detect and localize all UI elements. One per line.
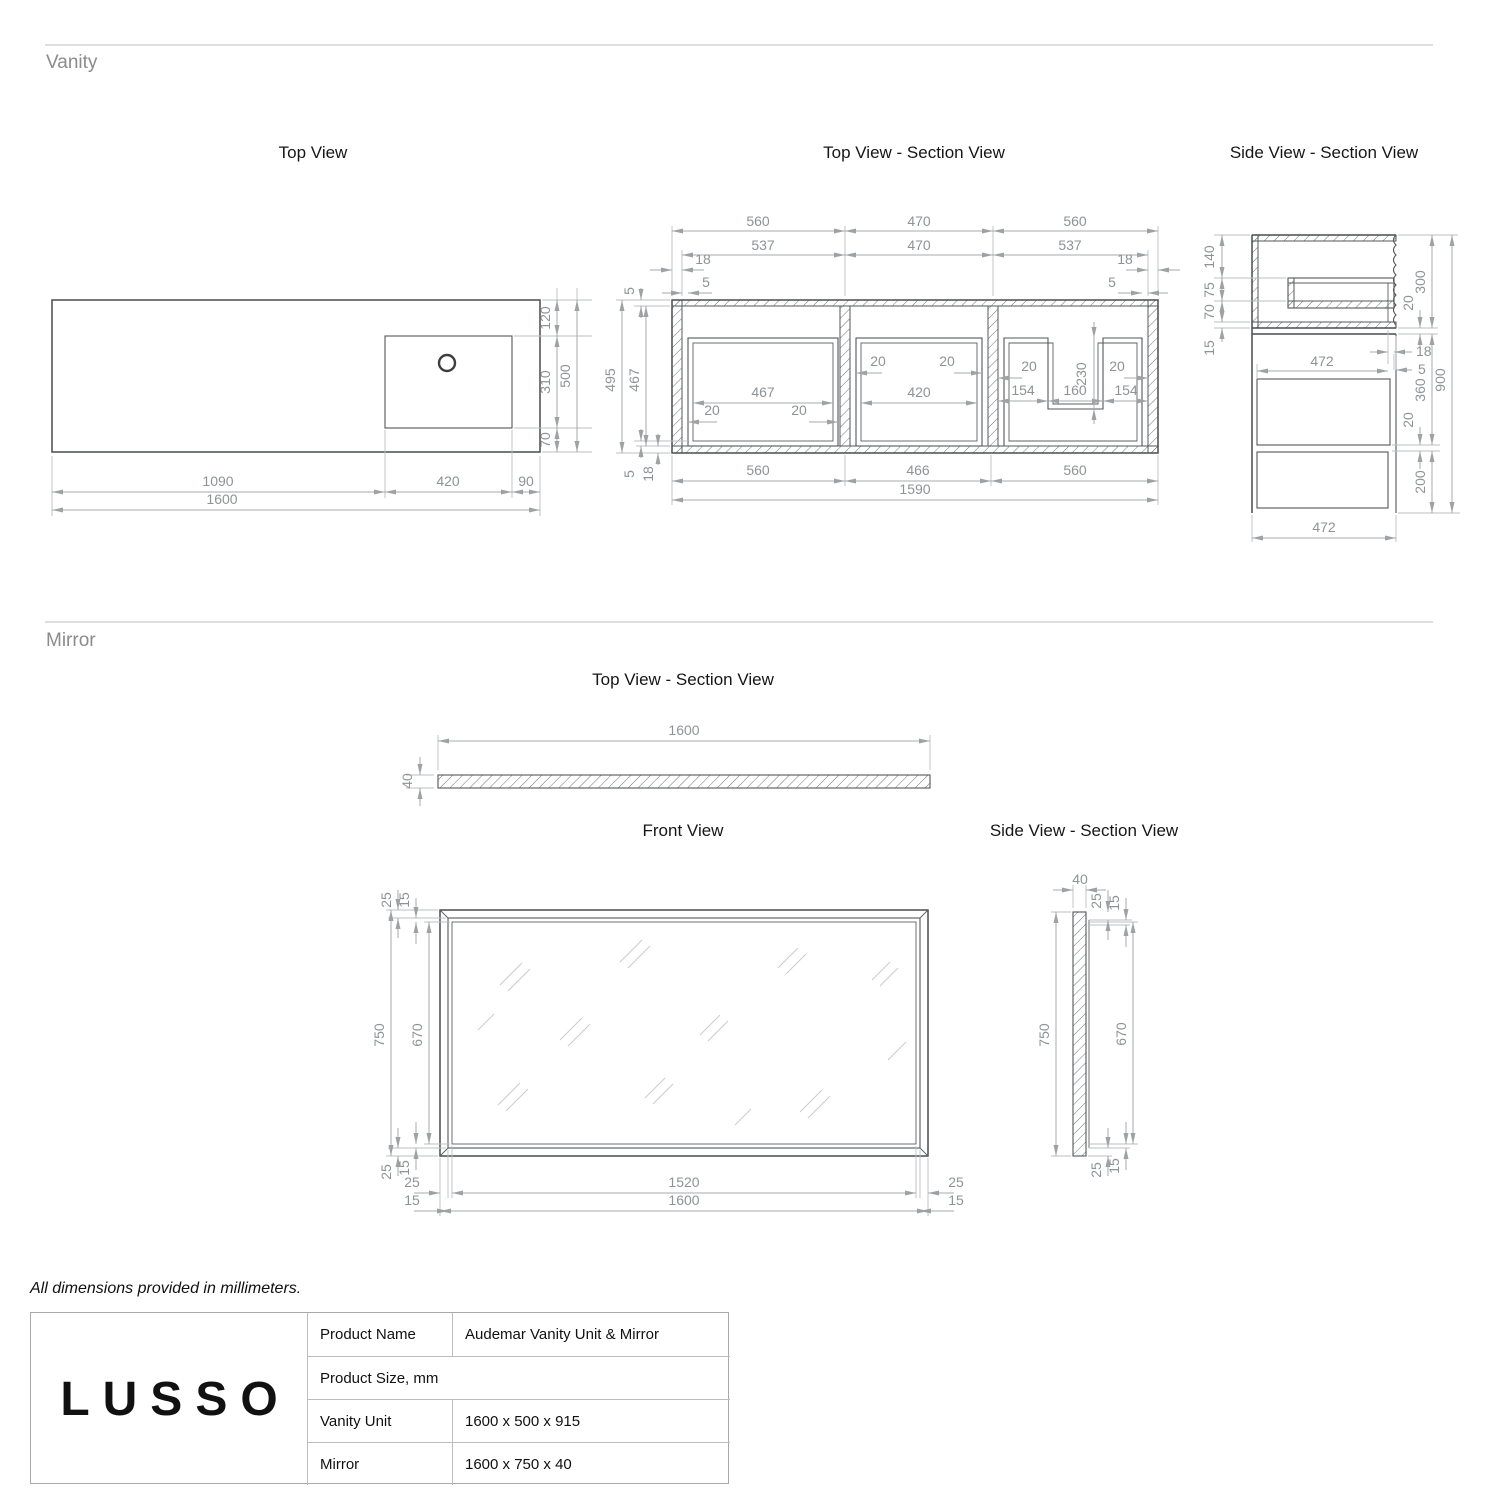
dim-label: 360 <box>1412 378 1428 402</box>
dim-label: 670 <box>1113 1022 1129 1046</box>
vanity-section-view-drawing: 560 470 560 537 470 537 18 5 18 5 5 <box>602 213 1180 505</box>
dim-label: 472 <box>1310 353 1334 369</box>
vanity-side-view-drawing: 140 75 70 15 300 20 360 20 200 900 18 5 <box>1201 235 1460 542</box>
dim-label: 25 <box>404 1174 420 1190</box>
dim-label: 154 <box>1011 382 1035 398</box>
dim-label: 90 <box>518 473 534 489</box>
dim-label: 670 <box>409 1023 425 1047</box>
dim-label: 20 <box>1109 358 1125 374</box>
dim-label: 230 <box>1073 362 1089 386</box>
mirror-glass-reflections <box>478 940 906 1125</box>
dim-label: 495 <box>602 368 618 392</box>
dim-label: 120 <box>537 306 553 330</box>
dim-label: 1600 <box>206 491 237 507</box>
dim-label: 537 <box>1058 237 1082 253</box>
faucet-hole <box>439 355 455 371</box>
drawing-sheet: Vanity Mirror Top View Top View - Sectio… <box>0 0 1500 1500</box>
dim-label: 15 <box>396 892 412 908</box>
dim-label: 20 <box>1400 412 1416 428</box>
dim-label: 15 <box>1106 895 1122 911</box>
dim-label: 420 <box>907 384 931 400</box>
dim-label: 140 <box>1201 245 1217 269</box>
mirror-size: 1600 x 750 x 40 <box>452 1442 730 1485</box>
dim-label: 467 <box>751 384 775 400</box>
vanity-top-view-drawing: 120 310 70 500 1090 420 90 1600 <box>52 288 592 516</box>
vanity-unit-label: Vanity Unit <box>308 1399 452 1442</box>
dim-label: 560 <box>1063 213 1087 229</box>
dim-label: 40 <box>1072 871 1088 887</box>
dim-label: 560 <box>746 213 770 229</box>
dim-label: 20 <box>1400 295 1416 311</box>
dim-label: 750 <box>1036 1023 1052 1047</box>
dim-label: 15 <box>1201 340 1217 356</box>
dim-label: 560 <box>746 462 770 478</box>
dim-label: 18 <box>1416 343 1432 359</box>
dim-label: 470 <box>907 237 931 253</box>
dim-label: 1600 <box>668 1192 699 1208</box>
mirror-label: Mirror <box>308 1442 452 1485</box>
dim-label: 40 <box>399 773 415 789</box>
dim-label: 470 <box>907 213 931 229</box>
dim-label: 18 <box>1117 251 1133 267</box>
dim-label: 1520 <box>668 1174 699 1190</box>
dim-label: 25 <box>378 892 394 908</box>
dim-label: 70 <box>537 432 553 448</box>
dim-label: 472 <box>1312 519 1336 535</box>
dim-label: 5 <box>702 274 710 290</box>
drawing-canvas: 120 310 70 500 1090 420 90 1600 <box>0 0 1500 1500</box>
title-block: LUSSO Product Name Audemar Vanity Unit &… <box>30 1312 729 1484</box>
mirror-side-view-drawing: 40 25 15 750 670 25 15 <box>1036 871 1138 1178</box>
dim-label: 15 <box>1106 1158 1122 1174</box>
product-size-label: Product Size, mm <box>308 1356 730 1399</box>
dim-label: 560 <box>1063 462 1087 478</box>
dim-label: 1600 <box>668 722 699 738</box>
product-name-value: Audemar Vanity Unit & Mirror <box>452 1313 730 1356</box>
dim-label: 154 <box>1114 382 1138 398</box>
dim-label: 420 <box>436 473 460 489</box>
dim-label: 1590 <box>899 481 930 497</box>
dim-label: 310 <box>537 370 553 394</box>
vanity-unit-size: 1600 x 500 x 915 <box>452 1399 730 1442</box>
dim-label: 25 <box>378 1164 394 1180</box>
dim-label: 300 <box>1412 270 1428 294</box>
dim-label: 5 <box>621 287 637 295</box>
dim-label: 20 <box>1021 358 1037 374</box>
brand-logo: LUSSO <box>31 1313 308 1485</box>
dim-label: 25 <box>948 1174 964 1190</box>
product-name-label: Product Name <box>308 1313 452 1356</box>
dim-label: 18 <box>640 466 656 482</box>
dim-label: 20 <box>939 353 955 369</box>
mirror-top-view-drawing: 1600 40 <box>399 722 930 806</box>
dim-label: 15 <box>948 1192 964 1208</box>
dim-label: 20 <box>870 353 886 369</box>
dim-label: 20 <box>704 402 720 418</box>
dim-label: 1090 <box>202 473 233 489</box>
dim-label: 466 <box>906 462 930 478</box>
mirror-front-view-drawing: 25 15 750 670 25 15 1520 25 25 1600 <box>371 890 964 1216</box>
dim-label: 900 <box>1432 368 1448 392</box>
dim-label: 75 <box>1201 282 1217 298</box>
dim-label: 18 <box>695 251 711 267</box>
dim-label: 25 <box>1088 893 1104 909</box>
dim-label: 25 <box>1088 1162 1104 1178</box>
dim-label: 20 <box>791 402 807 418</box>
dim-label: 5 <box>1418 361 1426 377</box>
dim-label: 467 <box>626 368 642 392</box>
dim-label: 750 <box>371 1023 387 1047</box>
dim-label: 537 <box>751 237 775 253</box>
dim-label: 5 <box>621 470 637 478</box>
dim-label: 200 <box>1412 470 1428 494</box>
dim-label: 15 <box>404 1192 420 1208</box>
dim-label: 5 <box>1108 274 1116 290</box>
dim-label: 500 <box>557 364 573 388</box>
dim-label: 70 <box>1201 304 1217 320</box>
